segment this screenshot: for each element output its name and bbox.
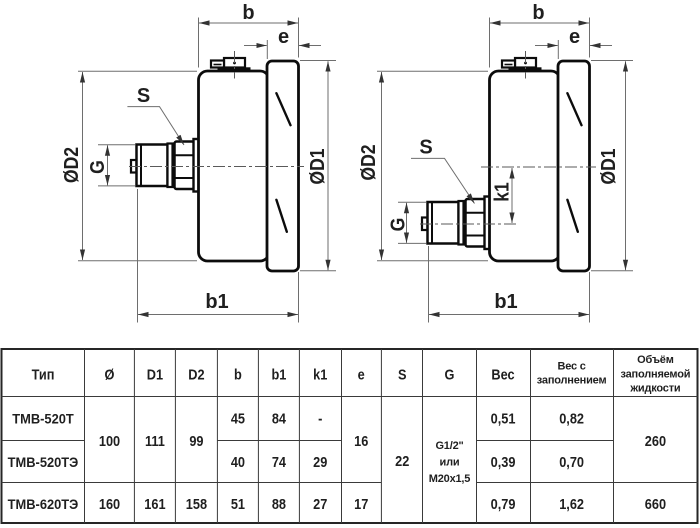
svg-text:0,51: 0,51 — [491, 409, 516, 426]
svg-text:45: 45 — [231, 409, 245, 426]
svg-text:1,62: 1,62 — [559, 495, 584, 512]
svg-text:ТМВ-620ТЭ: ТМВ-620ТЭ — [8, 497, 79, 513]
svg-text:260: 260 — [645, 432, 666, 449]
svg-text:b: b — [242, 2, 254, 24]
svg-text:ØD2: ØD2 — [357, 144, 379, 180]
svg-text:99: 99 — [189, 432, 203, 449]
svg-text:158: 158 — [186, 495, 207, 512]
svg-text:M20x1,5: M20x1,5 — [429, 473, 470, 485]
svg-text:D1: D1 — [147, 365, 164, 382]
svg-text:Объём: Объём — [637, 354, 674, 366]
svg-text:ØD1: ØD1 — [306, 148, 328, 184]
svg-text:40: 40 — [231, 453, 245, 470]
svg-text:111: 111 — [145, 432, 165, 449]
svg-text:D2: D2 — [188, 365, 205, 382]
svg-text:S: S — [419, 137, 432, 159]
svg-text:e: e — [569, 26, 580, 48]
svg-text:0,82: 0,82 — [559, 409, 584, 426]
svg-text:161: 161 — [144, 495, 165, 512]
svg-text:или: или — [440, 457, 460, 469]
svg-text:заполняемой: заполняемой — [620, 368, 690, 380]
svg-text:0,70: 0,70 — [559, 453, 584, 470]
svg-text:ТМВ-520ТЭ: ТМВ-520ТЭ — [8, 455, 79, 471]
svg-text:0,39: 0,39 — [491, 453, 516, 470]
svg-text:84: 84 — [272, 409, 286, 426]
svg-text:G: G — [86, 160, 108, 174]
svg-text:ТМВ-520Т: ТМВ-520Т — [12, 411, 74, 427]
svg-text:ØD2: ØD2 — [60, 147, 82, 183]
svg-text:29: 29 — [313, 453, 327, 470]
svg-text:0,79: 0,79 — [491, 495, 516, 512]
svg-text:k1: k1 — [313, 365, 327, 382]
svg-text:заполнением: заполнением — [537, 375, 607, 387]
svg-text:88: 88 — [272, 495, 286, 512]
svg-text:74: 74 — [272, 453, 286, 470]
svg-text:100: 100 — [99, 432, 120, 449]
svg-text:S: S — [137, 85, 150, 107]
svg-text:G1/2": G1/2" — [435, 440, 463, 452]
svg-text:Вес с: Вес с — [557, 361, 585, 373]
svg-text:Ø: Ø — [105, 365, 115, 382]
svg-text:22: 22 — [395, 452, 409, 469]
svg-text:e: e — [358, 365, 365, 382]
svg-text:жидкости: жидкости — [629, 383, 680, 395]
svg-text:e: e — [278, 26, 289, 48]
svg-text:27: 27 — [313, 495, 327, 512]
svg-text:b1: b1 — [271, 365, 286, 382]
svg-text:G: G — [445, 365, 455, 382]
svg-text:b1: b1 — [205, 291, 228, 313]
svg-text:660: 660 — [645, 495, 666, 512]
svg-text:ØD1: ØD1 — [597, 148, 619, 184]
svg-text:160: 160 — [99, 495, 120, 512]
svg-text:b1: b1 — [494, 291, 517, 313]
svg-text:Вес: Вес — [491, 365, 514, 382]
svg-text:-: - — [318, 409, 323, 426]
svg-text:k1: k1 — [490, 182, 512, 202]
svg-text:Тип: Тип — [32, 365, 55, 382]
svg-text:b: b — [234, 365, 242, 382]
svg-text:S: S — [398, 365, 407, 382]
svg-text:G: G — [386, 218, 408, 232]
svg-text:b: b — [532, 2, 544, 24]
svg-text:51: 51 — [231, 495, 245, 512]
svg-text:16: 16 — [354, 432, 368, 449]
svg-text:17: 17 — [354, 495, 368, 512]
